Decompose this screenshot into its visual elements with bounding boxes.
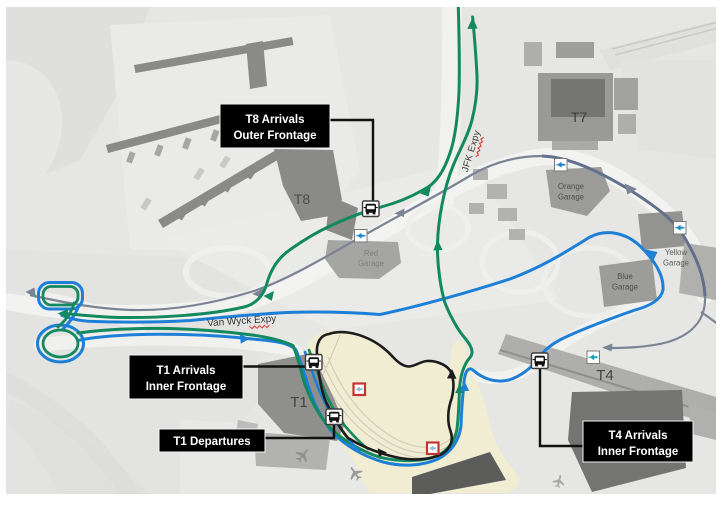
svg-text:T1 Arrivals: T1 Arrivals xyxy=(156,365,215,377)
svg-text:Garage: Garage xyxy=(663,259,689,268)
svg-text:Outer Frontage: Outer Frontage xyxy=(233,130,316,142)
svg-text:Blue: Blue xyxy=(617,272,633,281)
svg-text:T4 Arrivals: T4 Arrivals xyxy=(608,430,667,442)
svg-text:T1 Departures: T1 Departures xyxy=(173,436,250,448)
svg-text:Inner Frontage: Inner Frontage xyxy=(146,381,227,393)
svg-text:T8: T8 xyxy=(294,191,311,207)
svg-text:T8 Arrivals: T8 Arrivals xyxy=(245,114,304,126)
svg-text:Yellow: Yellow xyxy=(665,248,688,257)
svg-text:Garage: Garage xyxy=(358,259,384,268)
svg-text:Inner Frontage: Inner Frontage xyxy=(598,446,679,458)
svg-text:Garage: Garage xyxy=(558,193,584,202)
svg-text:Garage: Garage xyxy=(612,283,638,292)
svg-text:Orange: Orange xyxy=(558,182,584,191)
svg-text:T1: T1 xyxy=(290,394,308,411)
svg-text:T7: T7 xyxy=(571,109,588,125)
svg-text:T4: T4 xyxy=(596,367,614,384)
svg-text:Red: Red xyxy=(364,249,378,258)
